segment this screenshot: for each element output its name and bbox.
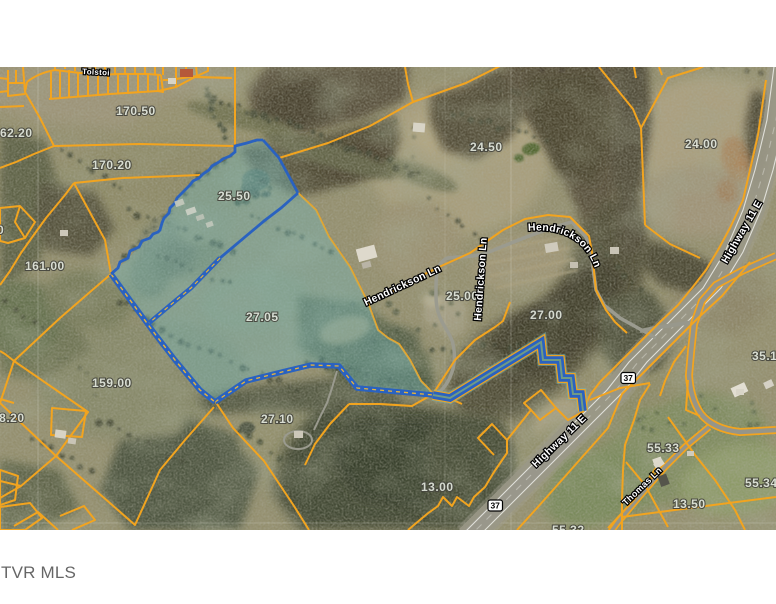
svg-text:62.20: 62.20: [0, 126, 33, 140]
svg-text:25.50: 25.50: [218, 189, 251, 203]
svg-text:27.05: 27.05: [246, 310, 279, 324]
svg-text:27.10: 27.10: [261, 412, 294, 426]
svg-text:24.00: 24.00: [685, 137, 718, 151]
svg-text:35.1: 35.1: [752, 349, 776, 363]
svg-text:161.00: 161.00: [25, 259, 65, 273]
svg-text:TVR MLS: TVR MLS: [1, 563, 76, 582]
svg-text:0: 0: [0, 223, 4, 237]
svg-text:27.00: 27.00: [530, 308, 563, 322]
svg-text:68.20: 68.20: [0, 411, 25, 425]
svg-text:159.00: 159.00: [92, 376, 132, 390]
svg-text:170.20: 170.20: [92, 158, 132, 172]
svg-text:170.50: 170.50: [116, 104, 156, 118]
svg-text:13.00: 13.00: [421, 480, 454, 494]
svg-text:24.50: 24.50: [470, 140, 503, 154]
svg-text:37: 37: [490, 501, 500, 511]
svg-text:55.34: 55.34: [745, 476, 776, 490]
svg-text:Tolstoi: Tolstoi: [82, 67, 110, 77]
svg-text:37: 37: [623, 373, 633, 383]
svg-text:13.50: 13.50: [673, 497, 706, 511]
svg-text:55.33: 55.33: [647, 441, 680, 455]
